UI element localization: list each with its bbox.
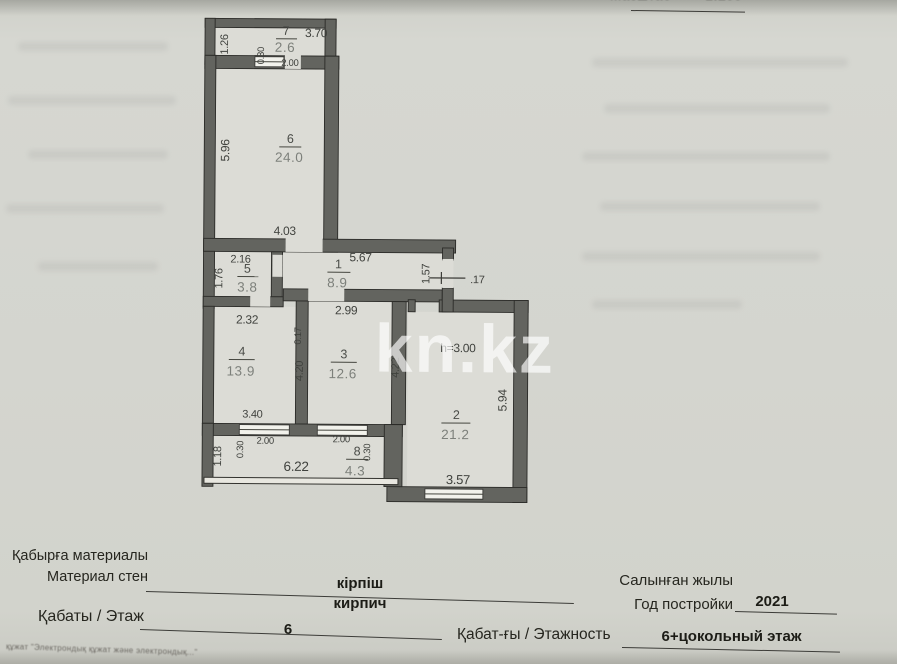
dim-corridor-end: 1.57 [420,264,432,284]
wall-material-label-kk: Қабырға материалы [8,546,148,567]
dim-room6-width: 4.03 [274,224,297,238]
dim-room8-win-left: 2.00 [257,436,274,447]
dim-room8-win-depth-left: 0.30 [235,441,246,458]
floor-label: Қабаты / Этаж [38,608,144,626]
dim-room4-height: 4.20 [294,361,306,381]
wall-segment [203,296,283,307]
floors-total-label: Қабат-ғы / Этажность [457,626,611,644]
build-year-label: Салынған жылы Год постройки [558,569,733,617]
wall-segment [283,289,442,302]
dim-tick-17: .17 [470,274,485,286]
dim-room2-bottom: 3.57 [446,472,470,487]
floors-total-value: 6+цокольный этаж [634,628,829,645]
door-opening [442,259,453,288]
dim-room4-width: 2.32 [236,313,259,327]
dim-room3-width: 2.99 [335,303,358,317]
wall-segment [324,56,339,252]
room5-area: 3.8 [237,280,257,295]
wall-segment [204,55,216,251]
dim-room2-height: 5.94 [495,389,509,412]
dim-room8-width: 6.22 [283,459,308,474]
wall-segment [202,306,214,423]
door-opening [286,238,323,252]
room1-number: 1 [335,257,342,271]
balcony-rail [204,477,398,484]
kn-kz-watermark: kn.kz [375,310,556,387]
room6-number: 6 [287,132,294,146]
build-year-value: 2021 [742,593,802,610]
room1-area: 8.9 [327,275,347,290]
dim-corridor-width: 5.67 [349,250,372,264]
room3-area: 12.6 [329,366,357,381]
wall-material-value: кірпіш кирпич [300,574,420,614]
room7-area: 2.6 [275,40,295,55]
build-year-label-kk: Салынған жылы [558,569,733,593]
dim-room4-bottom: 3.40 [242,409,262,421]
wall-segment [202,423,402,436]
room8-area: 4.3 [345,463,365,478]
dim-room5-height: 1.76 [213,268,225,288]
dim-room6-height: 5.96 [218,139,232,162]
wall-segment [384,425,402,487]
door-opening [272,255,282,277]
wall-segment [204,238,456,253]
dim-balcony-door-width: 2.00 [281,58,298,69]
dim-balcony-door-depth: 0.30 [256,47,267,64]
dim-room8-win-depth-right: 0.30 [362,444,373,461]
dim-balcony-height: 1.26 [219,34,231,54]
room4-number: 4 [238,345,245,359]
door-opening [250,296,270,307]
wall-segment [443,248,454,260]
room2-number: 2 [453,408,460,422]
dim-room8-win-right: 2.00 [333,434,350,445]
room4-area: 13.9 [227,363,255,378]
room6-area: 24.0 [275,150,303,165]
scanned-document-page: Масштаб1:200 [0,0,897,664]
wall-material-label: Қабырға материалы Материал стен [8,546,148,588]
room2-area: 21.2 [441,427,469,442]
dim-balcony-width: 3.70 [305,26,328,40]
room8-number: 8 [354,444,361,458]
wall-segment [442,288,453,312]
wall-material-value-kk: кірпіш [300,574,420,594]
room7-number: 7 [283,24,290,38]
dim-wall-thickness: 0.17 [293,327,304,344]
wall-material-label-ru: Материал стен [8,567,148,588]
build-year-label-ru: Год постройки [558,593,733,617]
dim-room8-height: 1.18 [212,446,224,466]
room3-number: 3 [340,347,347,361]
room5-number: 5 [244,262,251,276]
